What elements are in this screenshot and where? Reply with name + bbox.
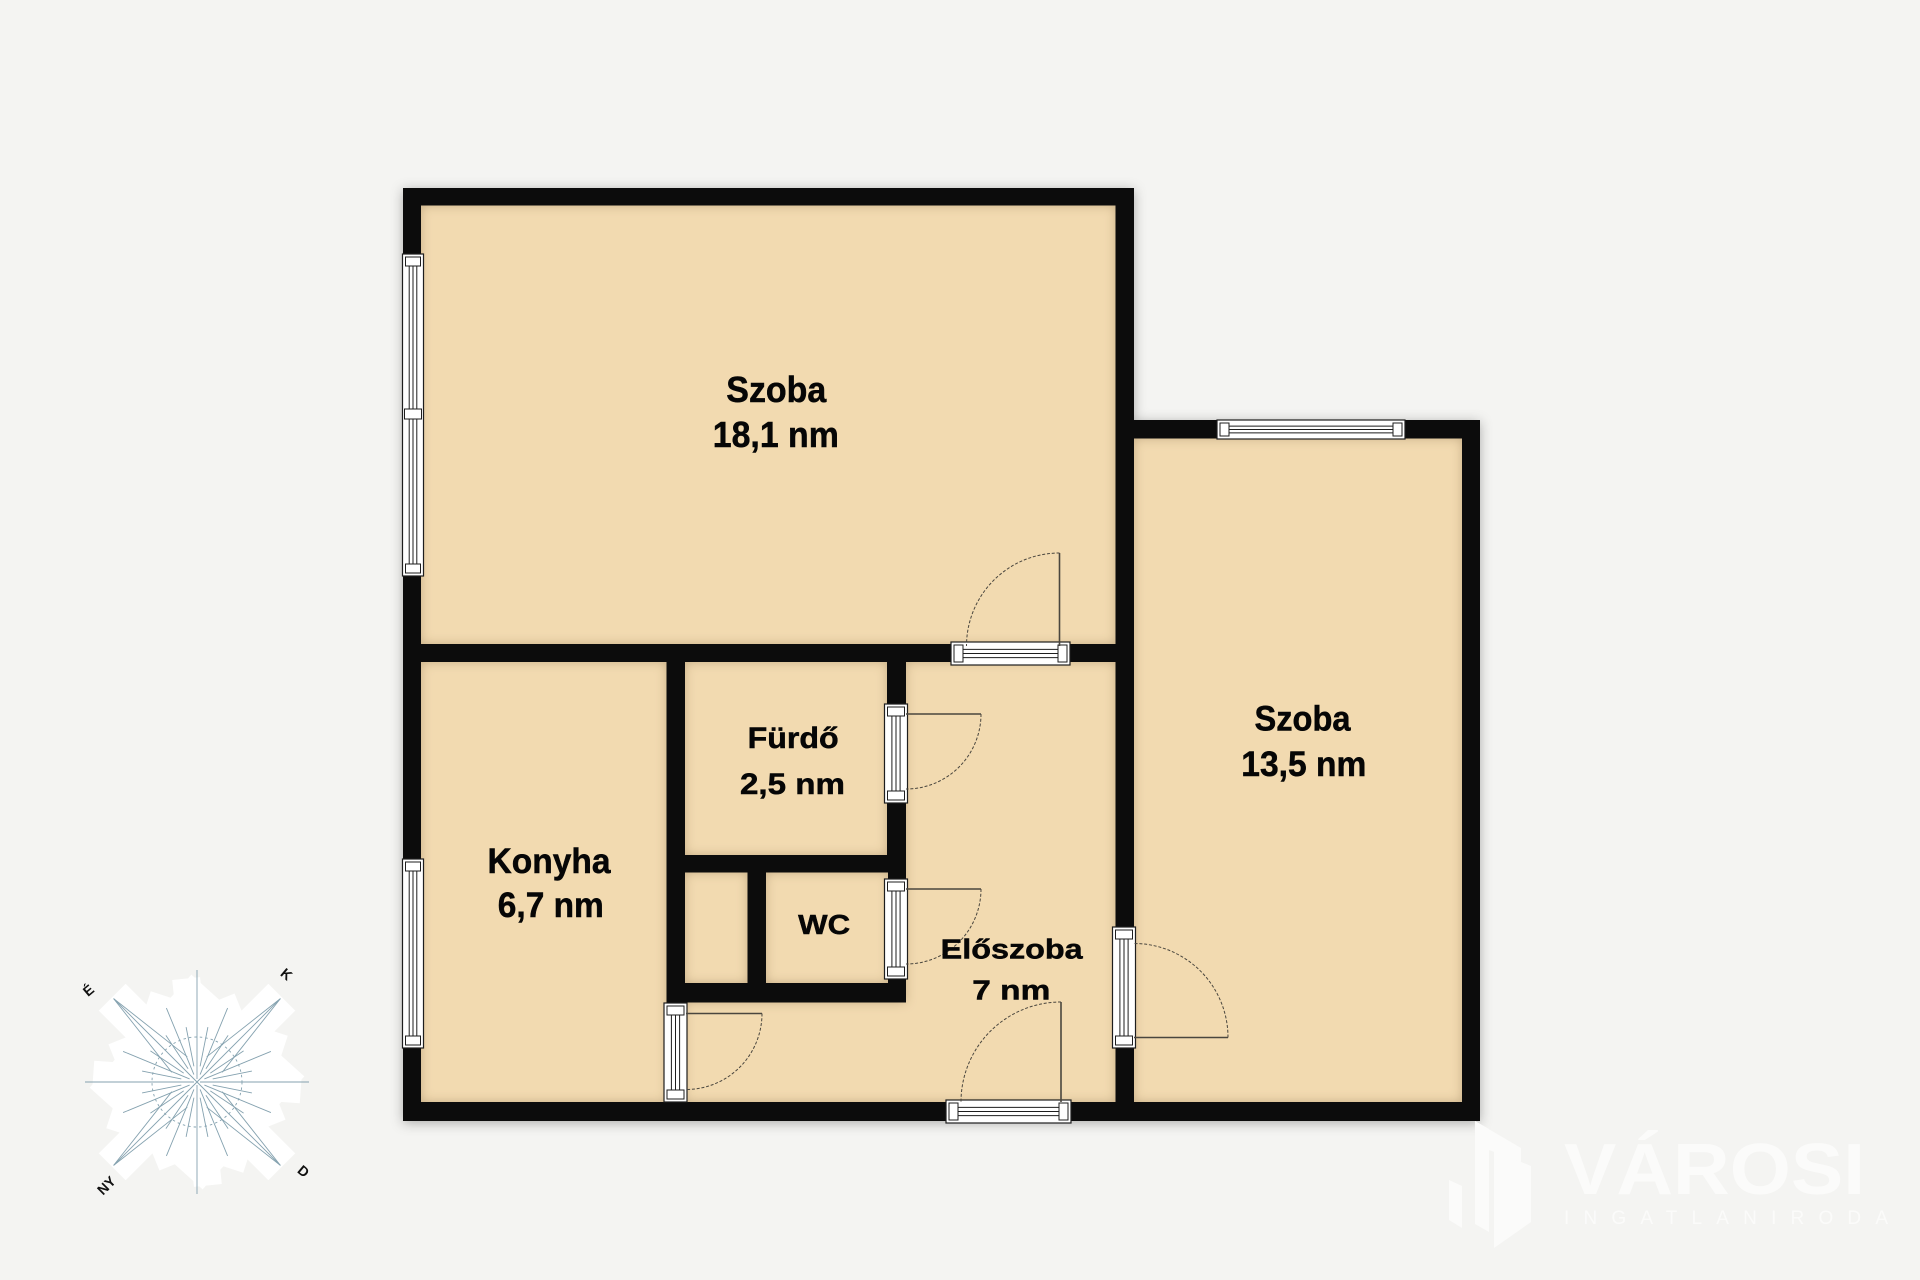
svg-text:Előszoba: Előszoba xyxy=(941,934,1083,965)
svg-text:13,5 nm: 13,5 nm xyxy=(1241,745,1366,784)
svg-text:VÁROSI: VÁROSI xyxy=(1564,1130,1865,1210)
svg-text:6,7 nm: 6,7 nm xyxy=(498,886,604,925)
svg-text:WC: WC xyxy=(798,909,850,940)
svg-text:Szoba: Szoba xyxy=(1255,700,1351,739)
svg-text:7 nm: 7 nm xyxy=(972,975,1050,1006)
svg-text:Fürdő: Fürdő xyxy=(748,722,839,755)
svg-text:Szoba: Szoba xyxy=(726,369,827,410)
svg-text:2,5 nm: 2,5 nm xyxy=(740,768,845,801)
svg-text:18,1 nm: 18,1 nm xyxy=(713,414,839,455)
svg-text:Konyha: Konyha xyxy=(488,842,611,881)
